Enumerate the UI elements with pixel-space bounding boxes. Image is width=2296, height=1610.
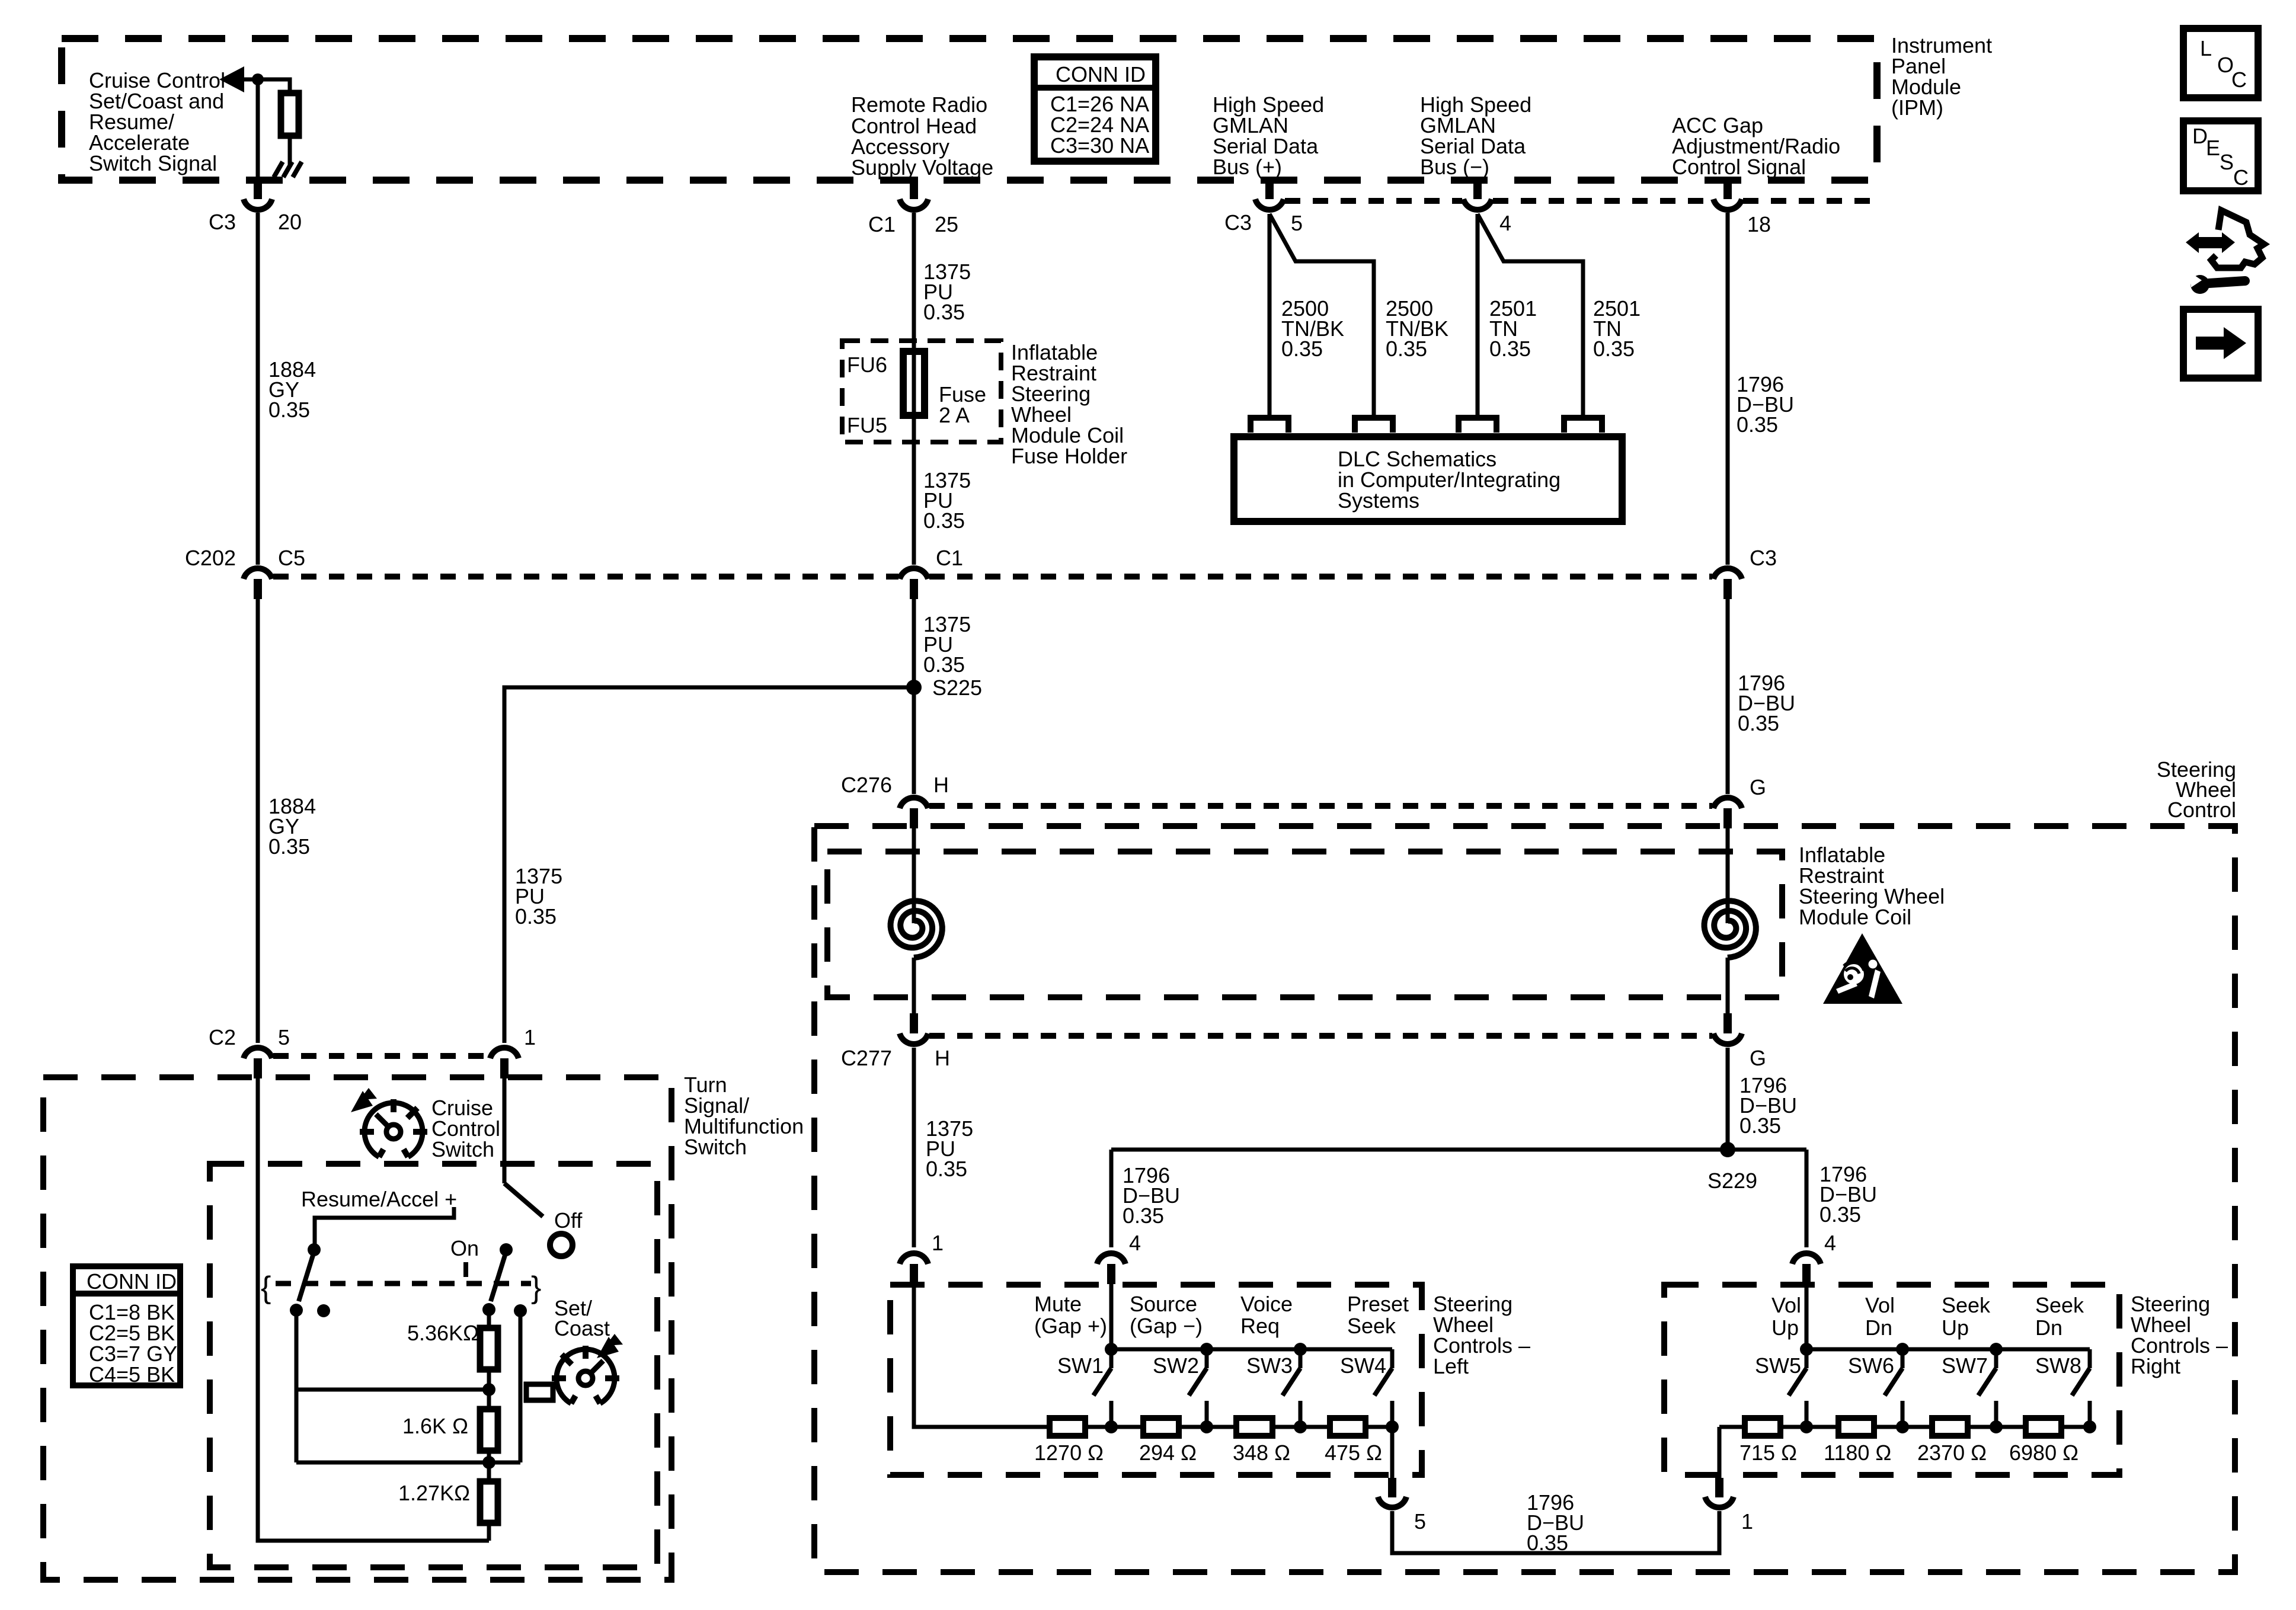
- svg-text:C3: C3: [209, 210, 236, 234]
- svg-text:C202: C202: [185, 546, 236, 570]
- svg-text:Vol: Vol: [1865, 1293, 1895, 1317]
- svg-text:SW8: SW8: [2035, 1353, 2081, 1378]
- svg-text:S225: S225: [932, 676, 982, 700]
- svg-text:18: 18: [1747, 212, 1771, 236]
- svg-text:0.35: 0.35: [268, 834, 310, 859]
- svg-text:1: 1: [932, 1231, 944, 1255]
- svg-text:715 Ω: 715 Ω: [1739, 1441, 1797, 1465]
- svg-text:Remote Radio: Remote Radio: [851, 92, 987, 117]
- svg-text:(Gap +): (Gap +): [1034, 1314, 1107, 1338]
- svg-text:C3: C3: [1750, 546, 1777, 570]
- svg-text:25: 25: [935, 212, 958, 236]
- svg-text:0.35: 0.35: [1123, 1204, 1164, 1228]
- svg-text:Resume/Accel +: Resume/Accel +: [301, 1187, 457, 1211]
- svg-text:0.35: 0.35: [1738, 711, 1779, 735]
- svg-text:Switch Signal: Switch Signal: [89, 151, 217, 175]
- svg-text:C: C: [2231, 68, 2247, 92]
- svg-text:SW3: SW3: [1246, 1353, 1293, 1378]
- svg-text:CONN ID: CONN ID: [87, 1269, 177, 1294]
- svg-text:0.35: 0.35: [1739, 1113, 1781, 1138]
- svg-text:C3=30 NA: C3=30 NA: [1050, 133, 1149, 158]
- svg-text:Bus (−): Bus (−): [1420, 155, 1489, 179]
- svg-text:C277: C277: [841, 1046, 892, 1070]
- svg-text:5.36KΩ: 5.36KΩ: [407, 1321, 479, 1345]
- svg-text:2370 Ω: 2370 Ω: [1917, 1441, 1987, 1465]
- svg-text:Coast: Coast: [554, 1316, 610, 1340]
- svg-text:Fuse Holder: Fuse Holder: [1011, 444, 1127, 468]
- svg-text:C1: C1: [868, 212, 896, 236]
- svg-text:Vol: Vol: [1771, 1293, 1801, 1317]
- svg-text:C4=5 BK: C4=5 BK: [89, 1362, 175, 1387]
- svg-text:4: 4: [1824, 1231, 1836, 1255]
- svg-text:0.35: 0.35: [268, 398, 310, 422]
- svg-text:Left: Left: [1433, 1354, 1469, 1378]
- svg-text:Dn: Dn: [2035, 1315, 2062, 1340]
- svg-text:0.35: 0.35: [1819, 1202, 1861, 1227]
- svg-text:0.35: 0.35: [1593, 337, 1635, 361]
- svg-text:4: 4: [1499, 211, 1511, 235]
- svg-text:Off: Off: [554, 1208, 583, 1233]
- svg-text:G: G: [1750, 1046, 1766, 1070]
- svg-text:S: S: [2220, 150, 2234, 174]
- svg-text:Dn: Dn: [1865, 1315, 1892, 1340]
- svg-text:C276: C276: [841, 773, 892, 797]
- svg-text:H: H: [933, 773, 949, 797]
- svg-text:1: 1: [524, 1025, 536, 1049]
- svg-text:H: H: [935, 1046, 950, 1070]
- svg-text:5: 5: [1414, 1509, 1426, 1534]
- svg-text:}: }: [531, 1270, 541, 1305]
- svg-text:C1: C1: [936, 546, 963, 570]
- svg-text:SW5: SW5: [1755, 1353, 1801, 1378]
- svg-text:(Gap −): (Gap −): [1130, 1314, 1203, 1338]
- svg-text:C2: C2: [209, 1025, 236, 1049]
- svg-text:0.35: 0.35: [923, 300, 965, 324]
- svg-text:Up: Up: [1942, 1315, 1969, 1340]
- svg-text:Seek: Seek: [2035, 1293, 2084, 1317]
- svg-text:0.35: 0.35: [1281, 337, 1323, 361]
- svg-text:0.35: 0.35: [1489, 337, 1531, 361]
- svg-text:Supply Voltage: Supply Voltage: [851, 155, 993, 180]
- svg-text:0.35: 0.35: [1386, 337, 1427, 361]
- svg-text:L: L: [2200, 36, 2212, 60]
- svg-text:Control: Control: [2167, 798, 2236, 822]
- svg-text:Seek: Seek: [1347, 1314, 1396, 1338]
- svg-text:4: 4: [1129, 1231, 1141, 1255]
- svg-text:SW2: SW2: [1153, 1353, 1199, 1378]
- svg-text:SW4: SW4: [1340, 1353, 1386, 1378]
- svg-text:Voice: Voice: [1240, 1292, 1293, 1316]
- svg-text:1270 Ω: 1270 Ω: [1034, 1441, 1104, 1465]
- svg-text:1180 Ω: 1180 Ω: [1824, 1441, 1891, 1465]
- svg-text:0.35: 0.35: [515, 904, 557, 929]
- svg-text:1.6K Ω: 1.6K Ω: [402, 1414, 468, 1438]
- svg-text:Seek: Seek: [1942, 1293, 1991, 1317]
- svg-text:Up: Up: [1771, 1315, 1799, 1340]
- svg-text:0.35: 0.35: [923, 508, 965, 533]
- svg-text:Source: Source: [1130, 1292, 1197, 1316]
- svg-text:SW1: SW1: [1057, 1353, 1104, 1378]
- svg-text:Preset: Preset: [1347, 1292, 1409, 1316]
- svg-text:FU6: FU6: [847, 353, 887, 377]
- svg-text:Module Coil: Module Coil: [1799, 905, 1911, 929]
- svg-text:Right: Right: [2131, 1354, 2180, 1378]
- svg-text:294 Ω: 294 Ω: [1139, 1441, 1197, 1465]
- svg-text:0.35: 0.35: [1737, 412, 1778, 437]
- svg-text:SW6: SW6: [1848, 1353, 1894, 1378]
- svg-text:5: 5: [278, 1025, 290, 1049]
- svg-text:475 Ω: 475 Ω: [1325, 1441, 1382, 1465]
- svg-text:0.35: 0.35: [926, 1157, 967, 1181]
- svg-text:Control Signal: Control Signal: [1672, 155, 1806, 179]
- svg-text:On: On: [450, 1236, 479, 1260]
- svg-text:Switch: Switch: [431, 1137, 494, 1161]
- svg-text:Systems: Systems: [1338, 488, 1419, 513]
- svg-text:Switch: Switch: [684, 1135, 747, 1159]
- svg-text:C5: C5: [278, 546, 305, 570]
- svg-text:Mute: Mute: [1034, 1292, 1082, 1316]
- svg-text:C3: C3: [1224, 210, 1252, 235]
- svg-text:{: {: [261, 1270, 271, 1305]
- svg-text:0.35: 0.35: [1527, 1531, 1568, 1555]
- svg-text:E: E: [2206, 136, 2220, 160]
- svg-text:348 Ω: 348 Ω: [1233, 1441, 1290, 1465]
- svg-text:2 A: 2 A: [939, 403, 970, 427]
- svg-text:1: 1: [1741, 1509, 1753, 1534]
- svg-text:S229: S229: [1707, 1169, 1757, 1193]
- svg-text:Req: Req: [1240, 1314, 1280, 1338]
- svg-text:5: 5: [1291, 211, 1303, 235]
- svg-text:Bus (+): Bus (+): [1213, 155, 1282, 179]
- svg-text:(IPM): (IPM): [1891, 95, 1943, 120]
- svg-text:0.35: 0.35: [923, 652, 965, 677]
- svg-text:CONN ID: CONN ID: [1056, 62, 1146, 87]
- svg-text:SW7: SW7: [1942, 1353, 1988, 1378]
- svg-text:G: G: [1750, 775, 1766, 799]
- svg-text:6980 Ω: 6980 Ω: [2009, 1441, 2078, 1465]
- svg-text:FU5: FU5: [847, 413, 887, 437]
- svg-text:20: 20: [278, 210, 302, 234]
- svg-text:C: C: [2233, 165, 2249, 190]
- svg-text:1.27KΩ: 1.27KΩ: [398, 1481, 470, 1505]
